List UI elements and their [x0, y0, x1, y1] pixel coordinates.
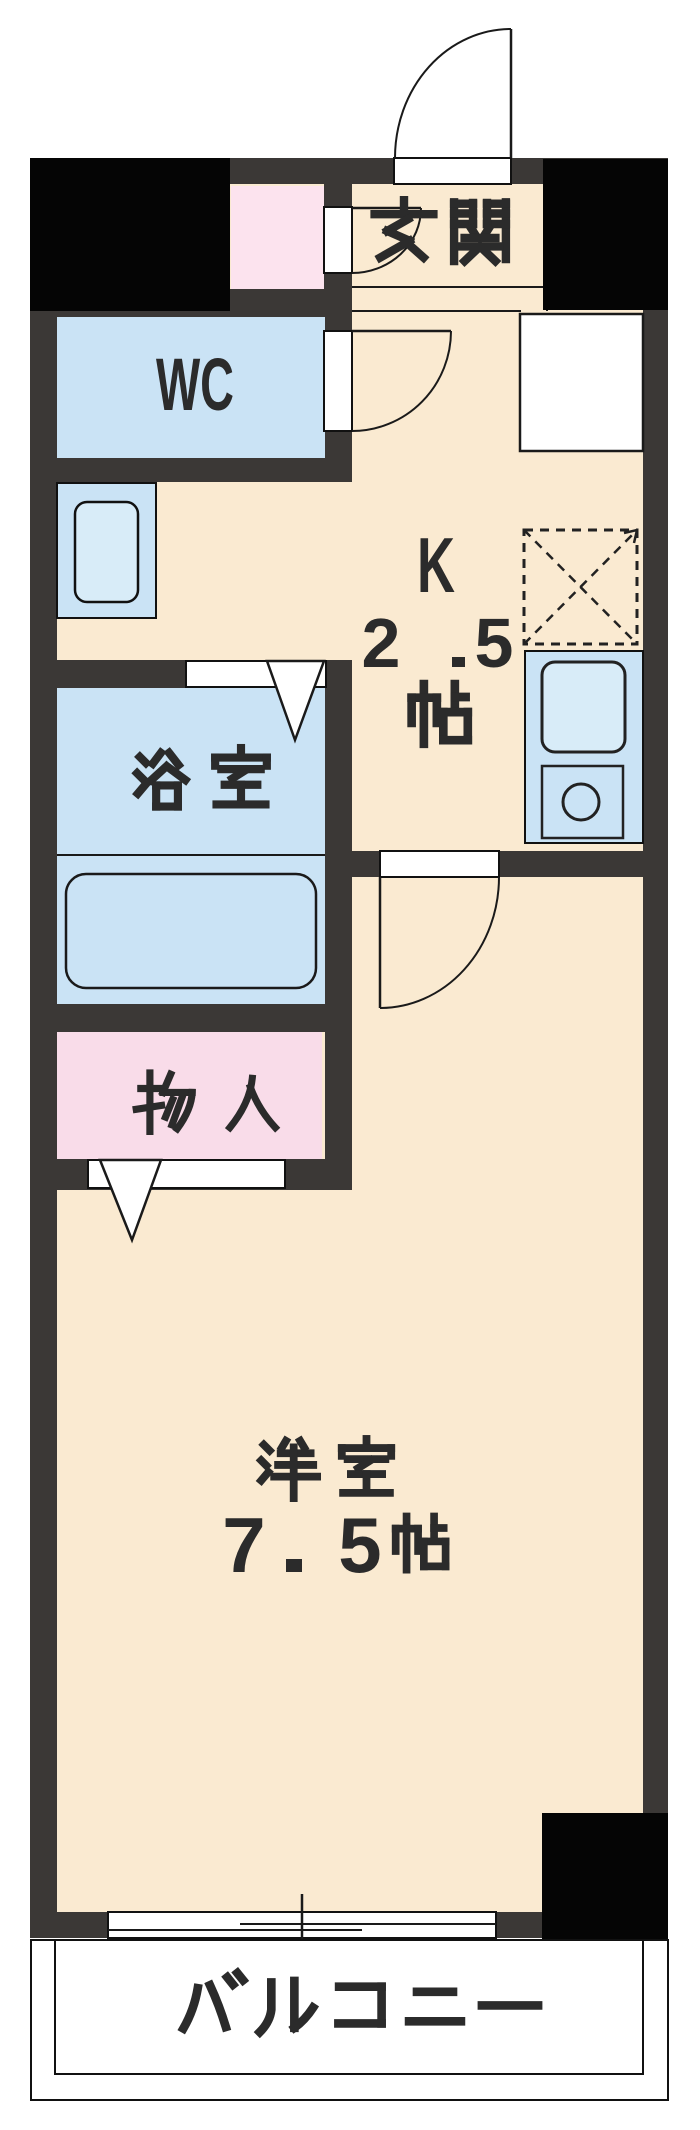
svg-text:K: K — [417, 521, 455, 609]
svg-text:7: 7 — [222, 1501, 265, 1589]
svg-text:5: 5 — [475, 604, 514, 682]
svg-text:5: 5 — [338, 1501, 381, 1589]
svg-text:2: 2 — [362, 604, 401, 682]
svg-text:WC: WC — [156, 343, 234, 426]
